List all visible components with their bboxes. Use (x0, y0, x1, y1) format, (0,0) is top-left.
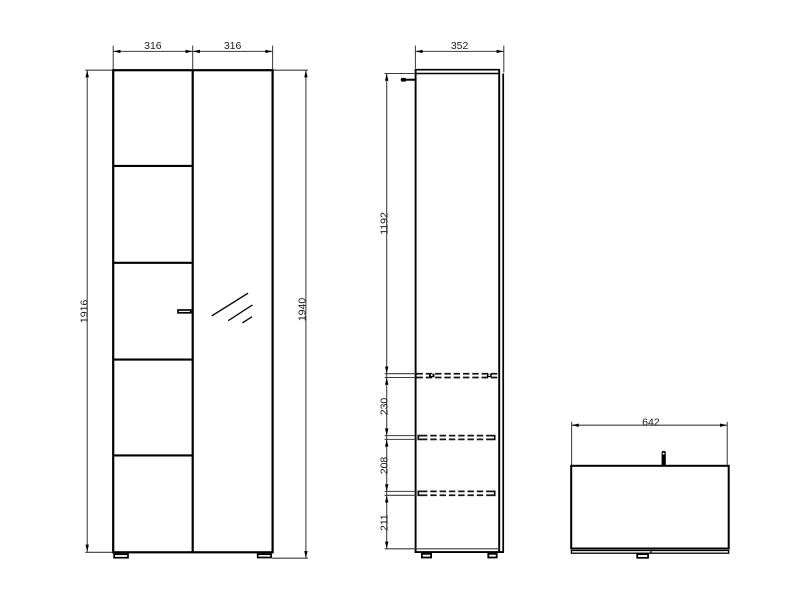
svg-text:230: 230 (379, 398, 391, 416)
svg-text:1916: 1916 (79, 300, 91, 324)
svg-text:642: 642 (642, 416, 660, 428)
svg-text:1192: 1192 (379, 212, 391, 235)
svg-text:208: 208 (379, 457, 391, 475)
svg-text:352: 352 (451, 40, 469, 52)
svg-text:211: 211 (379, 514, 391, 531)
svg-text:316: 316 (144, 40, 162, 52)
svg-text:316: 316 (224, 40, 242, 52)
svg-text:1940: 1940 (297, 298, 309, 322)
